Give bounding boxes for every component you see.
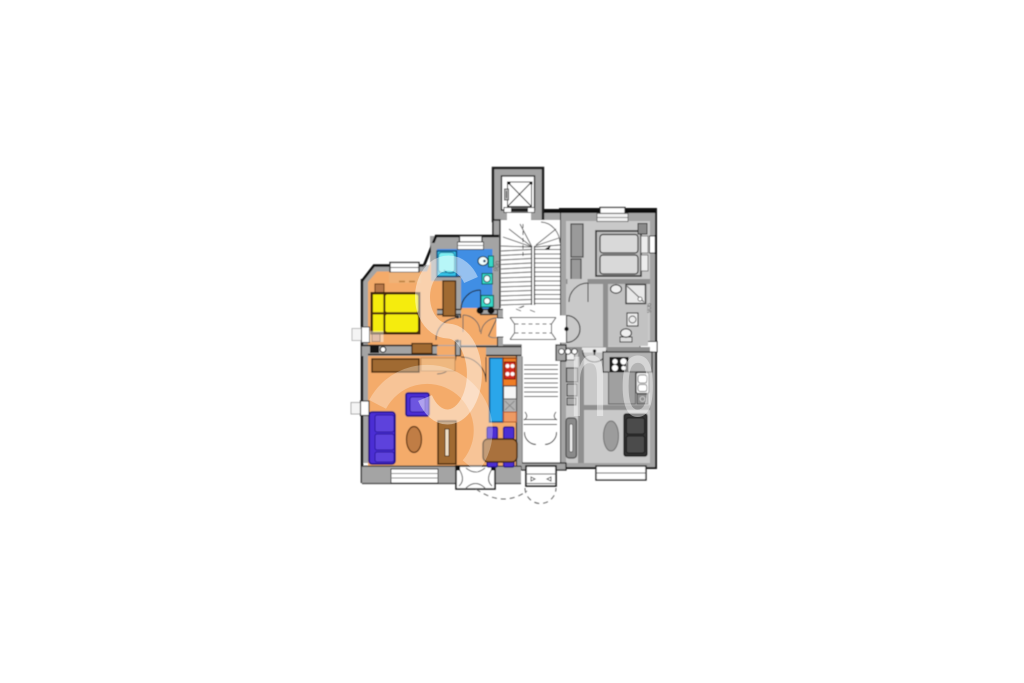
svg-text:n: n — [569, 315, 608, 440]
svg-text:o: o — [620, 315, 656, 440]
svg-text:906: 906 — [647, 302, 653, 313]
